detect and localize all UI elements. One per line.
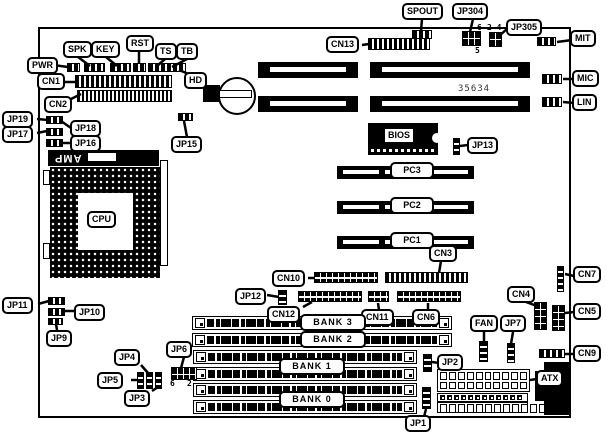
cn6-connector <box>397 291 461 302</box>
label-spout: SPOUT <box>402 3 443 20</box>
jp7-jumper <box>507 343 515 363</box>
jp10-jumper <box>48 308 65 316</box>
label-ts: TS <box>155 43 177 60</box>
bios-chip-notch <box>432 133 442 143</box>
atx-power-connector <box>437 369 530 392</box>
label-rst: RST <box>126 35 154 52</box>
label-jp3: JP3 <box>124 390 150 407</box>
label-jp10: JP10 <box>74 304 105 321</box>
label-cn12: CN12 <box>267 306 300 323</box>
label-jp4: JP4 <box>114 349 140 366</box>
label-bank3: BANK 3 <box>300 314 366 331</box>
label-cn5: CN5 <box>573 303 601 320</box>
jp2-jumper <box>423 354 432 372</box>
cn5-connector <box>552 305 565 331</box>
label-cn3: CN3 <box>429 245 457 262</box>
isa-slot-2-left <box>258 96 358 112</box>
label-atx: ATX <box>536 370 563 387</box>
cn10-connector <box>314 272 378 283</box>
label-jp7: JP7 <box>500 315 526 332</box>
cn2-connector <box>77 90 172 102</box>
label-jp6: JP6 <box>166 341 192 358</box>
jp304-pin5-number: 5 <box>475 47 480 55</box>
jp4-jumper <box>146 372 153 389</box>
jp6-pin2-number: 2 <box>187 380 192 388</box>
label-spk: SPK <box>63 41 92 58</box>
spk-header <box>84 63 105 72</box>
jp13-jumper <box>453 138 460 155</box>
motherboard-diagram: 35634 6 5 2 4 AMP CPU BIOS <box>0 0 606 433</box>
cpu-socket-tab-bottom <box>43 243 50 259</box>
isa-slot-1-right <box>370 62 530 78</box>
jp3-jumper <box>155 372 162 389</box>
label-mic: MIC <box>572 70 599 87</box>
bios-label: BIOS <box>384 128 414 143</box>
cpu-socket-tab-top <box>43 170 50 185</box>
label-pc3: PC3 <box>390 162 434 179</box>
cn7-connector <box>557 266 564 292</box>
label-jp17: JP17 <box>2 126 33 143</box>
cpu-socket-top-bar-window <box>88 153 116 161</box>
label-mit: MIT <box>570 30 596 47</box>
cpu-label: CPU <box>87 211 116 228</box>
label-jp13: JP13 <box>467 137 498 154</box>
jp12-jumper <box>278 290 287 305</box>
ts-tb-hd-header <box>148 63 186 72</box>
label-jp9: JP9 <box>46 330 72 347</box>
jp17-jumper <box>46 128 63 136</box>
pwr-header <box>67 63 80 72</box>
battery-clip-arm <box>219 90 252 98</box>
chip-marking: 35634 <box>458 84 490 94</box>
label-cn10: CN10 <box>272 270 305 287</box>
label-cn7: CN7 <box>573 266 601 283</box>
jp15-jumper <box>178 113 193 121</box>
cn12-connector <box>298 291 362 302</box>
label-cn1: CN1 <box>37 73 65 90</box>
jp11-jumper <box>48 297 65 305</box>
label-jp12: JP12 <box>235 288 266 305</box>
label-tb: TB <box>176 43 198 60</box>
mit-connector <box>537 37 556 46</box>
jp305-pin-numbers: 2 4 <box>487 24 501 32</box>
rst-header <box>133 63 146 72</box>
fan-connector <box>479 341 488 362</box>
jp304-pin6-number: 6 <box>477 24 482 32</box>
cn3-connector <box>385 272 468 283</box>
jp304-header <box>462 31 481 46</box>
jp1-jumper <box>422 387 431 409</box>
at-power-connector-pins <box>437 393 528 402</box>
label-cn13: CN13 <box>326 36 359 53</box>
label-fan: FAN <box>470 315 498 332</box>
label-jp2: JP2 <box>437 354 463 371</box>
cn9-connector <box>539 349 565 358</box>
label-jp15: JP15 <box>171 136 202 153</box>
label-bank2: BANK 2 <box>300 331 366 348</box>
jp9-jumper <box>48 318 63 325</box>
label-lin: LIN <box>572 94 597 111</box>
jp305-header <box>489 32 502 47</box>
label-cn6: CN6 <box>412 309 440 326</box>
label-pc2: PC2 <box>390 197 434 214</box>
isa-slot-2-right <box>370 96 530 112</box>
label-jp11: JP11 <box>2 297 33 314</box>
battery-holder <box>203 85 220 102</box>
label-bank1: BANK 1 <box>279 358 345 375</box>
isa-slot-1-left <box>258 62 358 78</box>
label-jp304: JP304 <box>452 3 488 20</box>
label-pwr: PWR <box>27 57 58 74</box>
at-power-connector-sockets <box>437 402 528 413</box>
jp5-jumper <box>137 372 144 389</box>
label-jp1: JP1 <box>405 415 431 432</box>
jp16-jumper <box>46 139 63 147</box>
label-cn2: CN2 <box>44 96 72 113</box>
cn13-connector <box>368 38 430 50</box>
cn4-connector <box>534 302 547 330</box>
label-cn4: CN4 <box>507 286 535 303</box>
label-pc1: PC1 <box>390 232 434 249</box>
cn1-connector <box>75 75 172 88</box>
label-jp5: JP5 <box>97 372 123 389</box>
jp19-jp18-jumper <box>46 116 63 124</box>
label-jp305: JP305 <box>506 19 542 36</box>
label-jp16: JP16 <box>70 135 101 152</box>
cpu-socket-lever <box>160 160 168 266</box>
spout-connector <box>412 30 432 39</box>
cn11-connector <box>368 291 389 302</box>
lin-connector <box>542 97 562 107</box>
label-bank0: BANK 0 <box>279 391 345 408</box>
jp6-pin6-number: 6 <box>170 380 175 388</box>
bios-chip-pins <box>371 149 435 152</box>
label-hd: HD <box>184 72 207 89</box>
mic-connector <box>542 74 562 84</box>
cpu-socket-brand-text: AMP <box>54 152 81 164</box>
label-key: KEY <box>91 41 120 58</box>
label-cn9: CN9 <box>573 345 601 362</box>
key-header <box>110 63 131 72</box>
